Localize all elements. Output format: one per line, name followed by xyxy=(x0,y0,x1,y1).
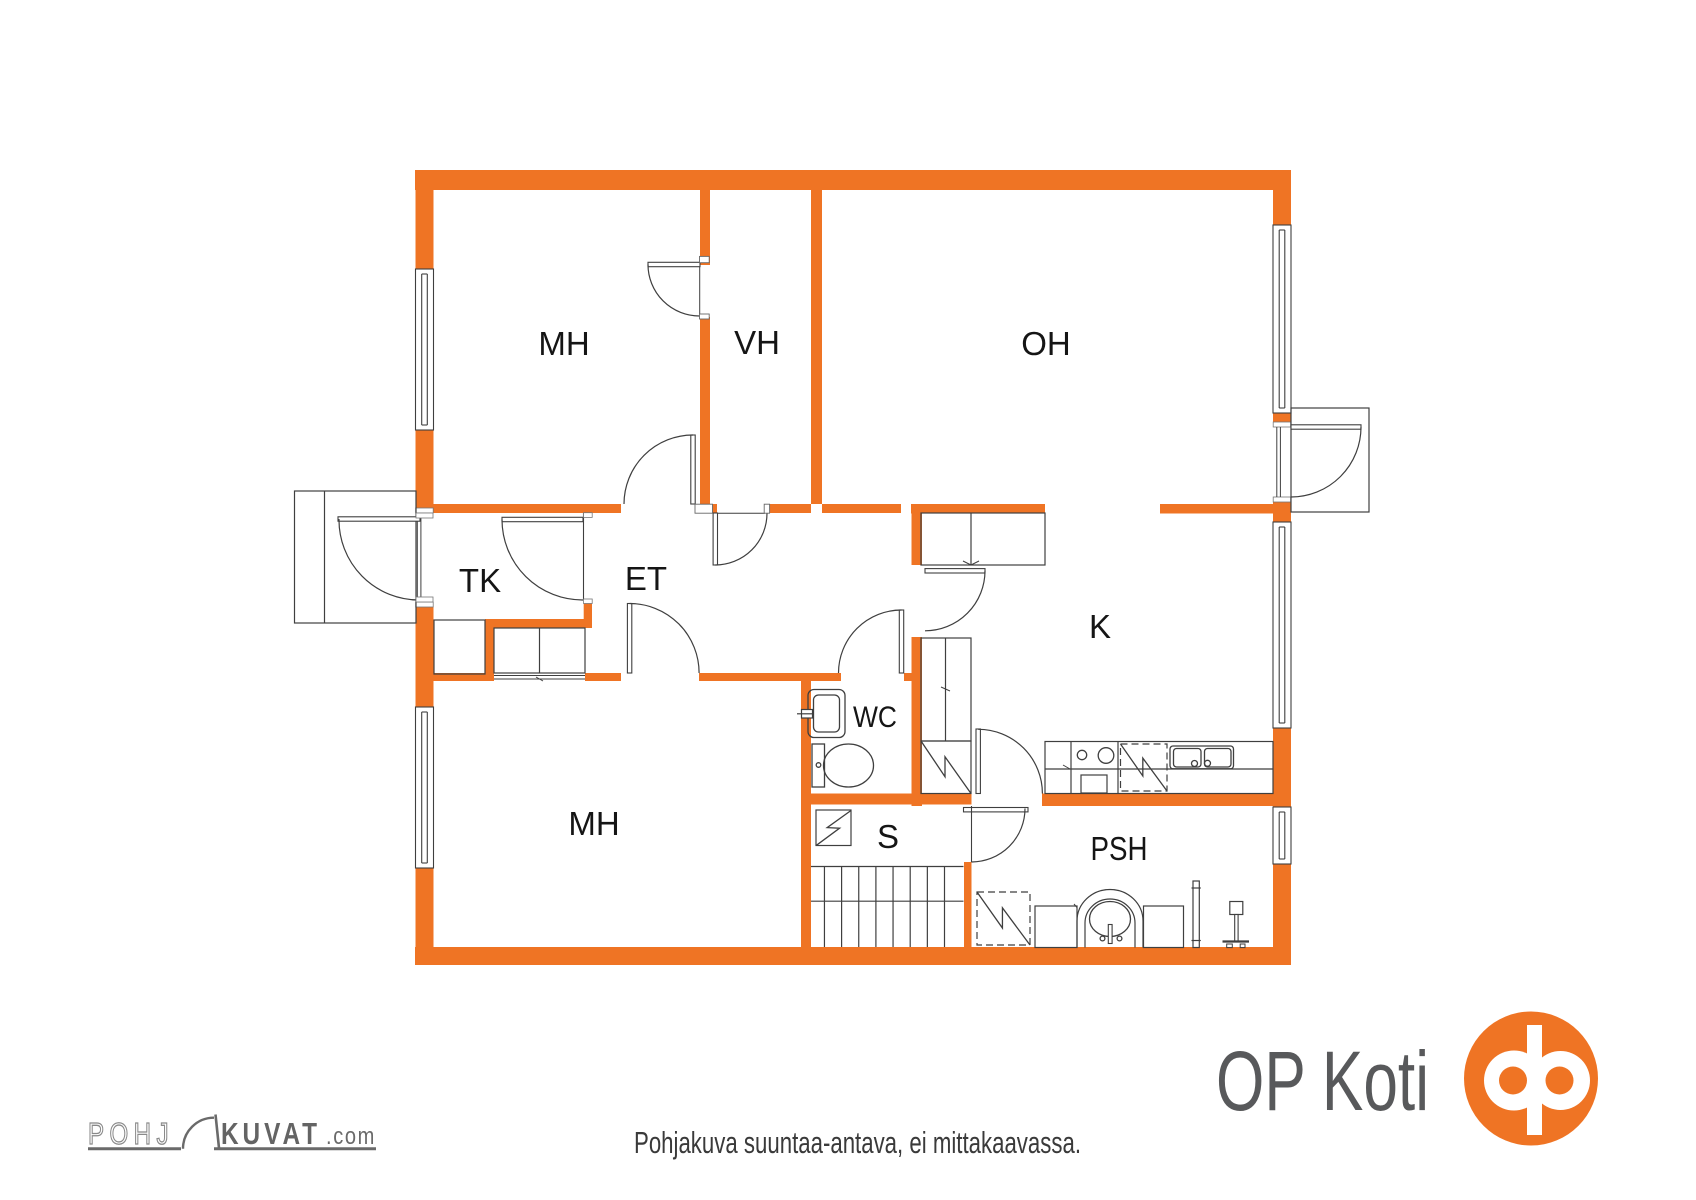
svg-text:S: S xyxy=(877,818,899,855)
svg-text:PSH: PSH xyxy=(1091,830,1148,867)
svg-text:MH: MH xyxy=(568,805,619,842)
svg-text:OH: OH xyxy=(1021,325,1071,362)
svg-text:WC: WC xyxy=(853,701,897,734)
svg-text:VH: VH xyxy=(734,324,780,361)
svg-text:.com: .com xyxy=(326,1123,376,1150)
svg-text:MH: MH xyxy=(538,325,589,362)
svg-text:OP Koti: OP Koti xyxy=(1216,1034,1429,1128)
svg-text:K: K xyxy=(1089,608,1111,645)
svg-text:TK: TK xyxy=(459,562,501,599)
svg-text:POHJ: POHJ xyxy=(88,1116,174,1151)
svg-text:Pohjakuva suuntaa-antava, ei m: Pohjakuva suuntaa-antava, ei mittakaavas… xyxy=(634,1125,1081,1160)
svg-text:ET: ET xyxy=(625,560,667,597)
svg-text:KUVAT: KUVAT xyxy=(221,1116,321,1151)
